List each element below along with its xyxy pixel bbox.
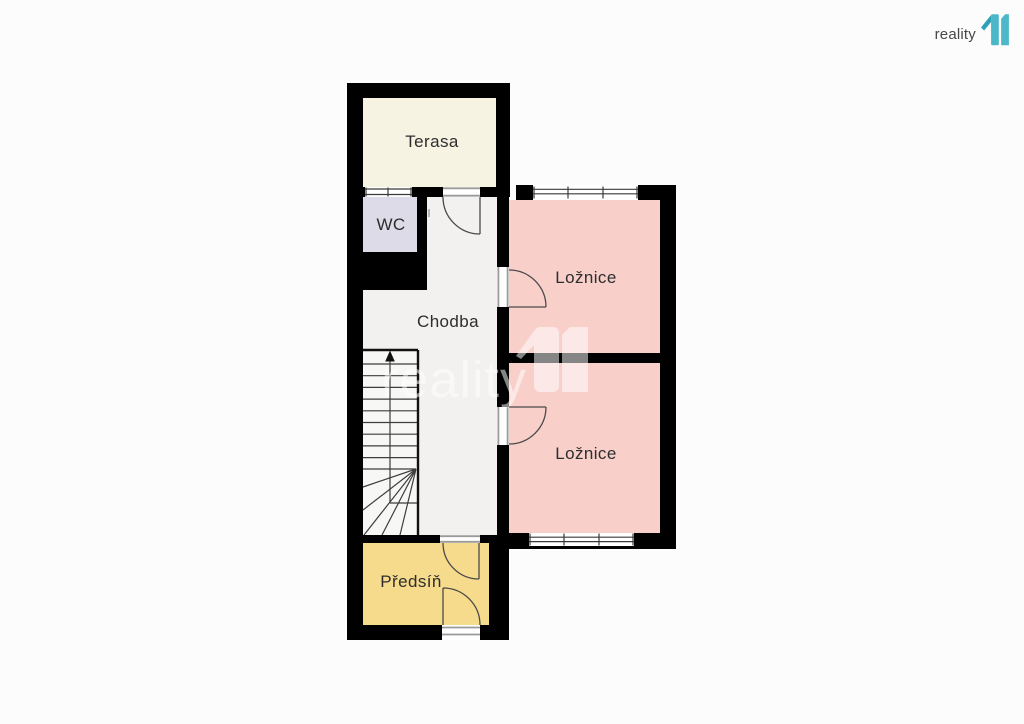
wall: [417, 197, 427, 252]
room-label-wc: WC: [376, 215, 405, 235]
room-label-loznice-1: Ložnice: [555, 268, 616, 288]
room-label-terasa: Terasa: [405, 132, 458, 152]
door-opening-loznice-2: [497, 407, 509, 445]
wall: [347, 83, 510, 98]
window-loznice-1: [533, 185, 638, 200]
wall: [660, 185, 676, 549]
wall: [363, 535, 440, 543]
wall: [496, 83, 510, 197]
brand-name: reality: [935, 26, 976, 43]
wall: [347, 625, 509, 640]
floorplan: [0, 0, 1024, 724]
window-wc: [365, 187, 412, 197]
room-label-loznice-2: Ložnice: [555, 444, 616, 464]
brand-11-icon: [981, 12, 1012, 46]
door-opening-entrance: [442, 625, 480, 640]
window-loznice-2: [529, 533, 634, 546]
wall: [347, 83, 363, 640]
wall: [489, 535, 509, 640]
stairs: [363, 350, 418, 535]
door-opening-loznice-1: [497, 267, 509, 307]
door-opening-predsin: [440, 535, 480, 543]
room-label-predsin: Předsíň: [380, 572, 441, 592]
wall: [497, 353, 660, 363]
door-opening-terasa: [443, 187, 480, 197]
brand-logo: reality: [935, 12, 1012, 46]
room-label-chodba: Chodba: [417, 312, 479, 332]
wall: [347, 252, 427, 290]
